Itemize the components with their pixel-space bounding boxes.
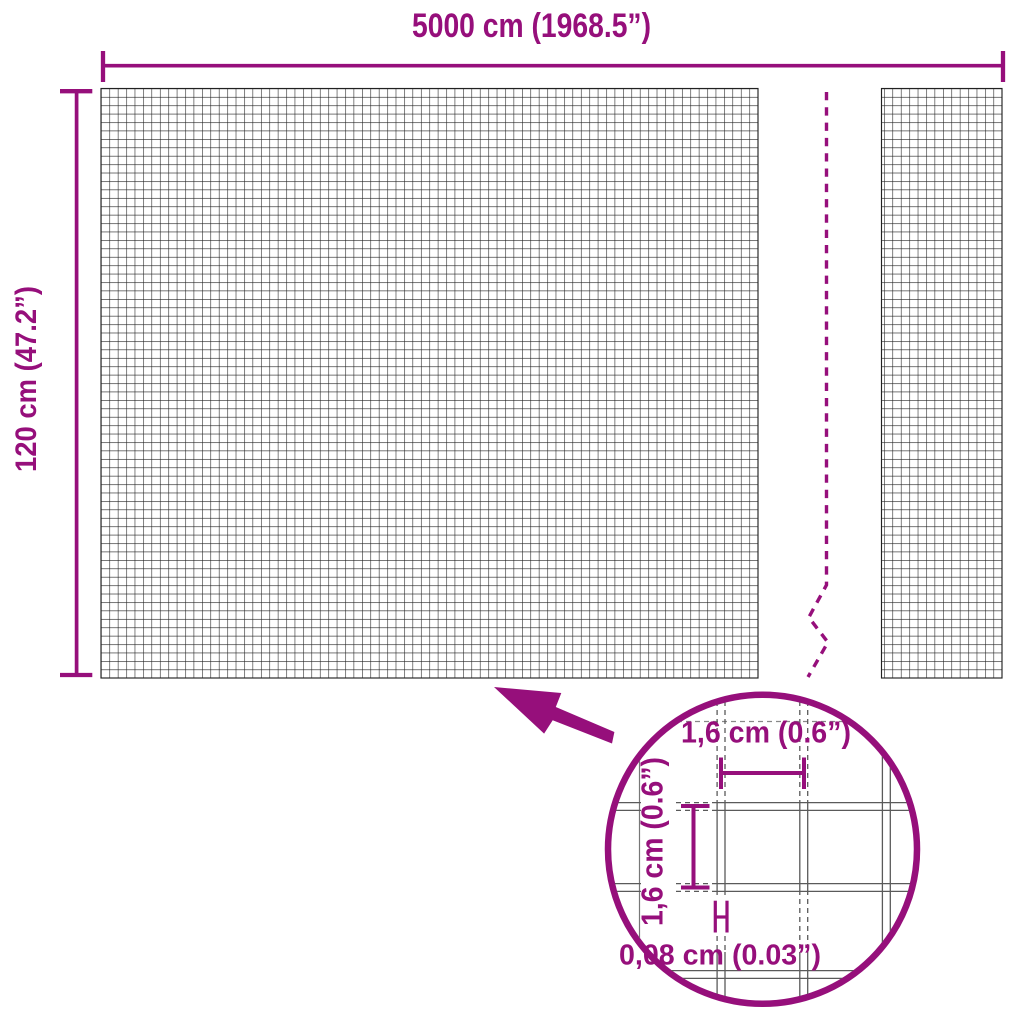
svg-text:0,08 cm (0.03”): 0,08 cm (0.03”) [619,939,821,971]
svg-text:120 cm (47.2”): 120 cm (47.2”) [10,286,43,472]
svg-text:1,6 cm (0.6”): 1,6 cm (0.6”) [681,715,851,750]
svg-text:1,6 cm (0.6”): 1,6 cm (0.6”) [635,757,670,926]
svg-text:5000 cm (1968.5”): 5000 cm (1968.5”) [412,7,651,45]
